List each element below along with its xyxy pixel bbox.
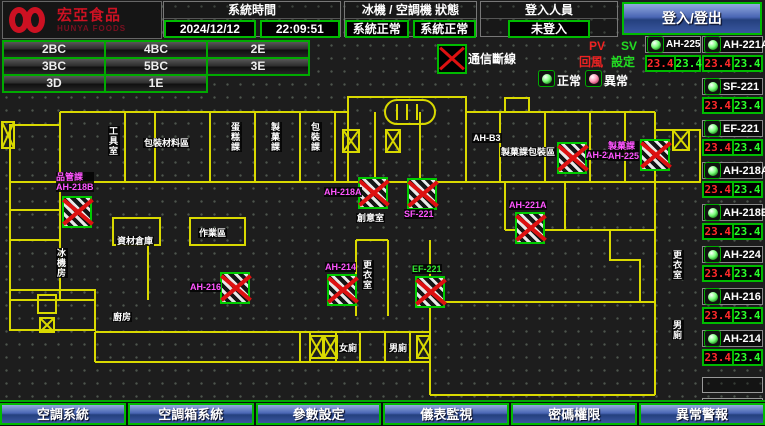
empty-equipment-slot xyxy=(702,377,763,393)
equipment-values: 23.423.4 xyxy=(702,265,763,282)
brand-subtitle: HUNYA FOODS xyxy=(57,24,126,33)
setpoint-label: 設定 xyxy=(611,53,635,70)
status-lamp-icon xyxy=(704,162,721,179)
equipment-values: 23.423.4 xyxy=(702,223,763,240)
system-time-label: 系統時間 xyxy=(164,2,340,19)
status-lamp-icon xyxy=(704,204,721,221)
equipment-entry-ah-214[interactable]: AH-21423.423.4 xyxy=(702,330,763,366)
sv-value: 23.4 xyxy=(734,183,762,196)
sv-value: 23.4 xyxy=(734,99,762,112)
equipment-name: SF-221 xyxy=(723,81,759,93)
sv-value: 23.4 xyxy=(734,57,762,70)
equipment-name: AH-221A xyxy=(723,39,765,51)
device-comm-loss-icon-ah-218a[interactable] xyxy=(358,177,388,209)
equipment-values: 23.423.4 xyxy=(702,349,763,366)
room-label: 工具室 xyxy=(108,126,120,156)
bottom-nav-bar: 空調系統空調箱系統參數設定儀表監視密碼權限異常警報 xyxy=(0,400,765,426)
company-logo: 宏亞食品 HUNYA FOODS xyxy=(2,1,162,39)
device-label-ah-218a: AH-218A xyxy=(324,187,362,197)
nav-button-參數設定[interactable]: 參數設定 xyxy=(256,403,382,425)
room-label: AH-B3 xyxy=(472,133,502,143)
pv-value: 23.4 xyxy=(704,99,734,112)
equipment-name: AH-214 xyxy=(723,333,761,345)
login-person-label: 登入人員 xyxy=(481,2,617,19)
return-air-label: 回風 xyxy=(579,53,603,70)
room-label: 更衣室 xyxy=(362,260,374,290)
normal-label: 正常 xyxy=(557,72,581,89)
room-label: 男廁 xyxy=(672,320,684,340)
comm-loss-label: 通信斷線 xyxy=(468,50,516,67)
status-lamp-icon xyxy=(647,36,664,53)
equipment-panel-left: AH-22523.423.4 xyxy=(645,36,701,78)
equipment-entry-ah-224[interactable]: AH-22423.423.4 xyxy=(702,246,763,282)
floor-plan-map: 工具室包裝材料區蛋糕課製菓課包裝課AH-B3製菓課包裝區資材倉庫作業區創意室更衣… xyxy=(0,90,702,402)
equipment-name: AH-225 xyxy=(666,39,700,50)
device-comm-loss-icon-ef-221[interactable] xyxy=(415,276,445,308)
pv-value: 23.4 xyxy=(704,57,734,70)
device-comm-loss-icon-ah-224[interactable] xyxy=(557,142,587,174)
room-label: 創意室 xyxy=(356,213,385,223)
nav-button-空調系統[interactable]: 空調系統 xyxy=(0,403,126,425)
equipment-entry-sf-221[interactable]: SF-22123.423.4 xyxy=(702,78,763,114)
device-comm-loss-icon-ah-221a[interactable] xyxy=(515,212,545,244)
status-lamp-icon xyxy=(704,120,721,137)
room-label: 包裝課 xyxy=(310,122,322,152)
pv-value: 23.4 xyxy=(704,267,734,280)
room-label: 更衣室 xyxy=(672,250,684,280)
pv-value: 23.4 xyxy=(647,57,676,70)
status-lamp-icon xyxy=(704,330,721,347)
equipment-values: 23.423.4 xyxy=(702,139,763,156)
pv-label: PV xyxy=(589,39,605,53)
machine-status-label: 冰機 / 空調機 狀態 xyxy=(345,2,476,19)
nav-button-空調箱系統[interactable]: 空調箱系統 xyxy=(128,403,254,425)
equipment-name: AH-218A xyxy=(723,165,765,177)
login-status-value: 未登入 xyxy=(508,20,590,38)
pv-value: 23.4 xyxy=(704,183,734,196)
room-label: 蛋糕課 xyxy=(230,122,242,152)
status-lamp-icon xyxy=(704,246,721,263)
sv-value: 23.4 xyxy=(734,309,762,322)
equipment-values: 23.423.4 xyxy=(702,55,763,72)
equipment-entry-ah-225[interactable]: AH-22523.423.4 xyxy=(645,36,701,72)
room-label: 資材倉庫 xyxy=(116,236,154,246)
status-lamp-icon xyxy=(704,288,721,305)
device-label-ah-214: AH-214 xyxy=(325,262,356,272)
room-label: 廚房 xyxy=(112,312,132,322)
equipment-entry-ah-218a[interactable]: AH-218A23.423.4 xyxy=(702,162,763,198)
normal-lamp-icon xyxy=(538,70,555,87)
device-comm-loss-icon-ah-225[interactable] xyxy=(640,139,670,171)
room-label: 製菓課包裝區 xyxy=(500,147,556,157)
device-label-ah-216: AH-216 xyxy=(190,282,221,292)
sv-value: 23.4 xyxy=(734,225,762,238)
equipment-panel-right: AH-221A23.423.4SF-22123.423.4EF-22123.42… xyxy=(702,36,763,414)
equipment-values: 23.423.4 xyxy=(645,55,701,72)
system-time-section: 系統時間 2024/12/12 22:09:51 xyxy=(163,1,341,37)
equipment-name: EF-221 xyxy=(723,123,759,135)
comm-loss-icon xyxy=(437,44,467,74)
pv-value: 23.4 xyxy=(704,141,734,154)
room-label: 女廁 xyxy=(338,343,358,353)
room-label: 製菓課 xyxy=(270,122,282,152)
device-comm-loss-icon-ah-214[interactable] xyxy=(327,274,357,306)
sv-label: SV xyxy=(621,39,637,53)
device-label-ef-221: EF-221 xyxy=(412,264,442,274)
room-label: 包裝材料區 xyxy=(143,138,190,148)
equipment-name: AH-218B xyxy=(723,207,765,219)
equipment-entry-ah-216[interactable]: AH-21623.423.4 xyxy=(702,288,763,324)
room-label: 作業區 xyxy=(198,228,227,238)
device-comm-loss-icon-ah-218b[interactable] xyxy=(62,196,92,228)
device-label-ah-221a: AH-221A xyxy=(509,200,547,210)
equipment-values: 23.423.4 xyxy=(702,181,763,198)
equipment-values: 23.423.4 xyxy=(702,307,763,324)
nav-button-密碼權限[interactable]: 密碼權限 xyxy=(511,403,637,425)
machine-status-section: 冰機 / 空調機 狀態 系統正常 系統正常 xyxy=(344,1,477,37)
nav-button-儀表監視[interactable]: 儀表監視 xyxy=(383,403,509,425)
sv-value: 23.4 xyxy=(734,141,762,154)
logo-rings-icon xyxy=(7,4,51,36)
chiller-status-value: 系統正常 xyxy=(345,20,409,38)
ahu-status-value: 系統正常 xyxy=(413,20,477,38)
brand-name: 宏亞食品 xyxy=(57,8,126,24)
status-lamp-icon xyxy=(704,36,721,53)
equipment-values: 23.423.4 xyxy=(702,97,763,114)
abnormal-lamp-icon xyxy=(585,70,602,87)
device-label-ah-218b: 品管課AH-218B xyxy=(56,172,94,192)
floor-button-3e[interactable]: 3E xyxy=(206,57,310,76)
sv-value: 23.4 xyxy=(734,351,762,364)
equipment-entry-ah-218b[interactable]: AH-218B23.423.4 xyxy=(702,204,763,240)
status-lamp-icon xyxy=(704,78,721,95)
nav-button-異常警報[interactable]: 異常警報 xyxy=(639,403,765,425)
equipment-entry-ah-221a[interactable]: AH-221A23.423.4 xyxy=(702,36,763,72)
device-label-ah-225: 製菓課AH-225 xyxy=(608,141,639,161)
pv-value: 23.4 xyxy=(704,225,734,238)
sv-value: 23.4 xyxy=(676,57,703,70)
equipment-name: AH-216 xyxy=(723,291,761,303)
room-label: 冰機房 xyxy=(56,248,68,278)
room-label: 男廁 xyxy=(388,343,408,353)
pv-value: 23.4 xyxy=(704,351,734,364)
device-comm-loss-icon-ah-216[interactable] xyxy=(220,272,250,304)
floor-plan-walls xyxy=(0,90,702,402)
equipment-name: AH-224 xyxy=(723,249,761,261)
login-logout-button[interactable]: 登入/登出 xyxy=(622,2,762,35)
equipment-entry-ef-221[interactable]: EF-22123.423.4 xyxy=(702,120,763,156)
pv-value: 23.4 xyxy=(704,309,734,322)
hvac-scada-screen: 宏亞食品 HUNYA FOODS 系統時間 2024/12/12 22:09:5… xyxy=(0,0,765,426)
system-date-value: 2024/12/12 xyxy=(164,20,256,38)
login-section: 登入人員 未登入 xyxy=(480,1,618,37)
abnormal-label: 異常 xyxy=(604,72,628,89)
system-time-value: 22:09:51 xyxy=(260,20,340,38)
sv-value: 23.4 xyxy=(734,267,762,280)
device-comm-loss-icon-sf-221[interactable] xyxy=(407,178,437,210)
device-label-sf-221: SF-221 xyxy=(404,209,434,219)
